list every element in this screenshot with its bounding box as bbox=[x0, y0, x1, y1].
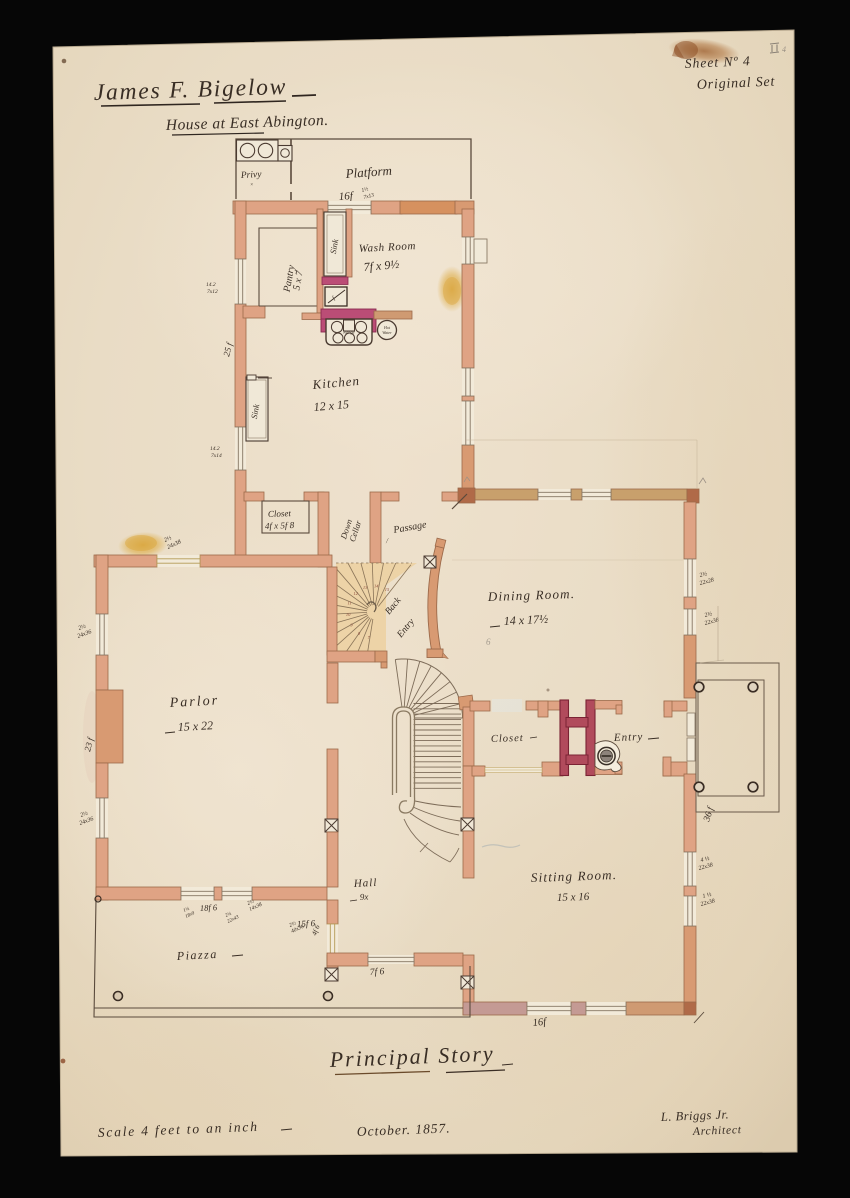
svg-text:4f x 5f 8: 4f x 5f 8 bbox=[265, 520, 295, 531]
svg-text:15f 6: 15f 6 bbox=[297, 918, 316, 929]
svg-text:15 x 22: 15 x 22 bbox=[177, 718, 213, 734]
svg-text:15 x 16: 15 x 16 bbox=[557, 891, 590, 904]
svg-text:11: 11 bbox=[348, 601, 352, 606]
svg-text:14 x 17½: 14 x 17½ bbox=[503, 612, 548, 628]
svg-text:Parlor: Parlor bbox=[168, 693, 219, 711]
svg-text:Closet: Closet bbox=[491, 733, 524, 745]
svg-text:Privy: Privy bbox=[240, 170, 263, 181]
svg-text:6: 6 bbox=[486, 637, 491, 647]
svg-text:L. Briggs Jr.: L. Briggs Jr. bbox=[660, 1107, 730, 1124]
svg-text:Entry: Entry bbox=[613, 731, 644, 744]
svg-text:Sitting Room.: Sitting Room. bbox=[531, 867, 618, 885]
svg-text:13: 13 bbox=[363, 585, 368, 590]
svg-text:15: 15 bbox=[385, 587, 390, 592]
svg-text:14.2: 14.2 bbox=[206, 281, 216, 288]
svg-text:7f 6: 7f 6 bbox=[369, 966, 384, 978]
svg-text:Dining Room.: Dining Room. bbox=[487, 586, 576, 604]
svg-text:4: 4 bbox=[782, 45, 786, 54]
svg-text:Hall: Hall bbox=[353, 877, 378, 890]
svg-text:×: × bbox=[250, 183, 253, 188]
svg-text:9x: 9x bbox=[360, 892, 369, 902]
svg-text:7x12: 7x12 bbox=[207, 289, 218, 295]
svg-text:14.2: 14.2 bbox=[210, 445, 220, 452]
svg-text:Closet: Closet bbox=[268, 508, 292, 519]
svg-text:Sheet Nº 4: Sheet Nº 4 bbox=[684, 53, 751, 71]
svg-text:18f 6: 18f 6 bbox=[200, 902, 218, 913]
svg-text:10: 10 bbox=[346, 612, 351, 617]
svg-text:Piazza: Piazza bbox=[175, 947, 218, 963]
svg-text:7x14: 7x14 bbox=[211, 452, 222, 459]
svg-text:14: 14 bbox=[374, 584, 379, 589]
svg-text:Architect: Architect bbox=[692, 1124, 742, 1138]
svg-text:Range: Range bbox=[342, 330, 355, 335]
svg-text:12: 12 bbox=[353, 591, 358, 596]
svg-text:Water: Water bbox=[382, 330, 392, 335]
